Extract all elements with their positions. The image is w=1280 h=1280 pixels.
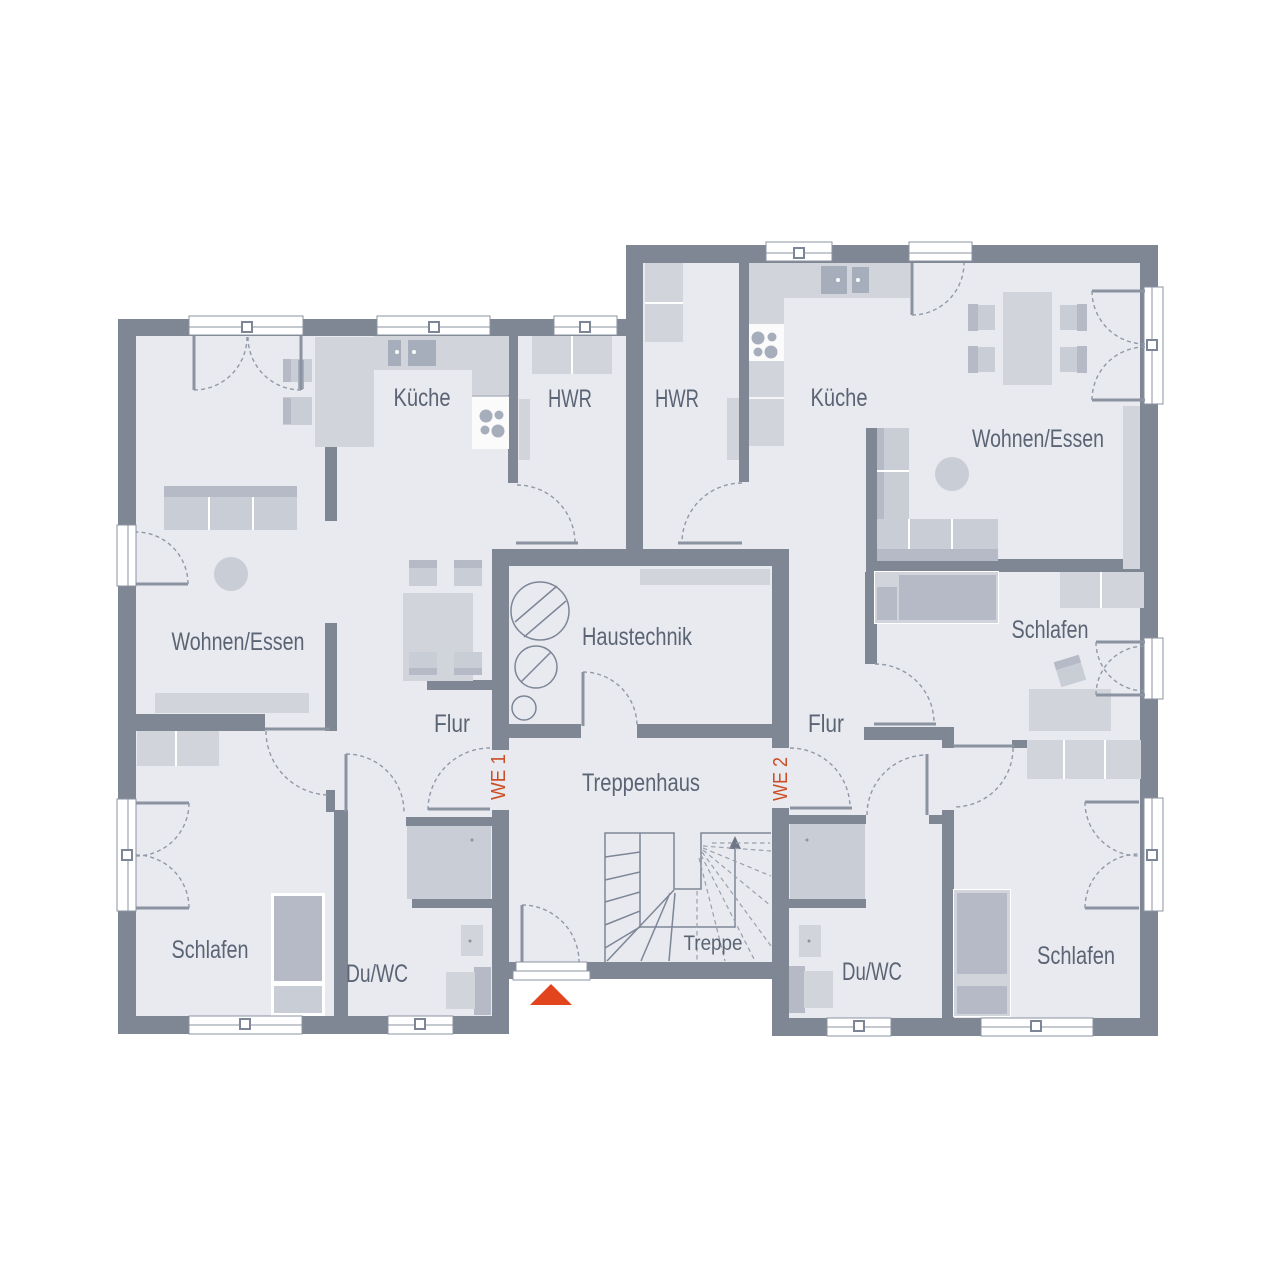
- svg-text:WE 1: WE 1: [488, 754, 510, 800]
- svg-text:Treppenhaus: Treppenhaus: [582, 769, 700, 797]
- svg-text:Du/WC: Du/WC: [346, 960, 408, 988]
- svg-text:Schlafen: Schlafen: [172, 936, 249, 964]
- svg-text:Schlafen: Schlafen: [1037, 942, 1115, 970]
- svg-text:Wohnen/Essen: Wohnen/Essen: [172, 628, 305, 656]
- svg-text:Flur: Flur: [808, 710, 844, 738]
- svg-text:Wohnen/Essen: Wohnen/Essen: [972, 425, 1104, 453]
- svg-text:Küche: Küche: [811, 384, 868, 412]
- svg-text:Treppe: Treppe: [684, 932, 743, 955]
- svg-text:Küche: Küche: [394, 384, 451, 412]
- svg-text:Haustechnik: Haustechnik: [582, 623, 692, 651]
- svg-text:Flur: Flur: [434, 710, 470, 738]
- svg-text:HWR: HWR: [548, 385, 592, 413]
- svg-text:WE 2: WE 2: [770, 757, 792, 801]
- svg-text:HWR: HWR: [655, 385, 699, 413]
- svg-text:Schlafen: Schlafen: [1012, 616, 1089, 644]
- svg-text:Du/WC: Du/WC: [842, 958, 902, 986]
